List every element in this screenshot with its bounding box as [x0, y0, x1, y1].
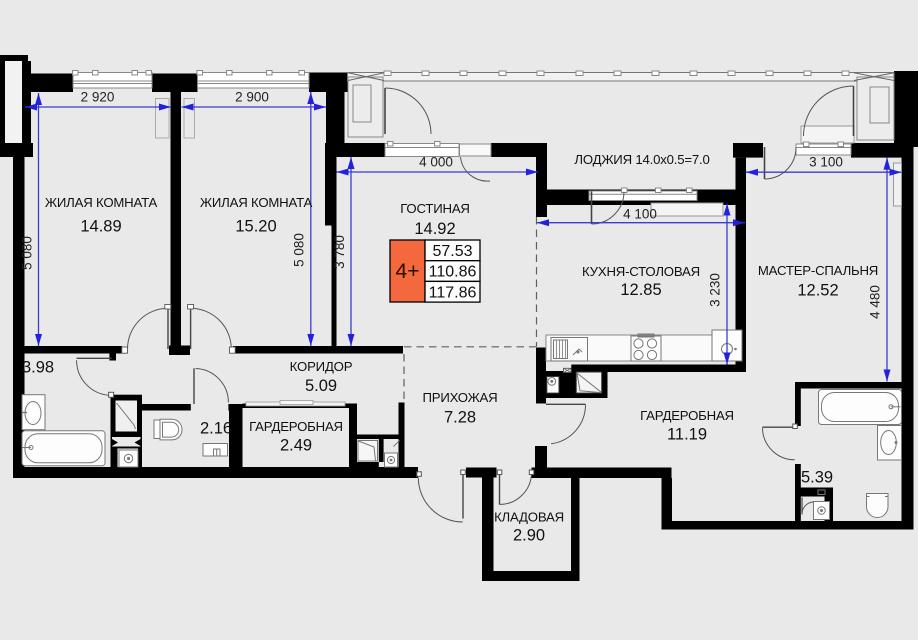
svg-text:2 900: 2 900 [235, 90, 269, 105]
svg-text:3 780: 3 780 [332, 235, 347, 269]
svg-text:5.39: 5.39 [801, 469, 833, 487]
svg-text:ЛОДЖИЯ 14.0x0.5=7.0: ЛОДЖИЯ 14.0x0.5=7.0 [574, 152, 709, 167]
svg-text:117.86: 117.86 [429, 284, 477, 301]
svg-text:5.09: 5.09 [305, 377, 337, 395]
svg-text:4 100: 4 100 [623, 207, 657, 222]
svg-text:2.16: 2.16 [200, 420, 232, 438]
svg-text:7.28: 7.28 [444, 409, 476, 427]
svg-text:ГОСТИНАЯ: ГОСТИНАЯ [400, 201, 470, 216]
svg-text:4 480: 4 480 [868, 285, 883, 319]
svg-text:ЖИЛАЯ КОМНАТА: ЖИЛАЯ КОМНАТА [45, 195, 158, 210]
svg-text:МАСТЕР-СПАЛЬНЯ: МАСТЕР-СПАЛЬНЯ [758, 263, 878, 278]
svg-text:14.89: 14.89 [80, 218, 121, 236]
svg-text:2.90: 2.90 [513, 527, 545, 545]
svg-text:5 080: 5 080 [292, 233, 307, 267]
svg-text:3 100: 3 100 [809, 155, 843, 170]
svg-text:ГАРДЕРОБНАЯ: ГАРДЕРОБНАЯ [249, 419, 343, 434]
svg-text:14.92: 14.92 [414, 220, 455, 238]
svg-text:3 230: 3 230 [708, 273, 723, 307]
svg-text:ЖИЛАЯ КОМНАТА: ЖИЛАЯ КОМНАТА [200, 195, 313, 210]
svg-text:3.98: 3.98 [22, 359, 54, 377]
svg-text:57.53: 57.53 [432, 243, 472, 260]
svg-text:12.85: 12.85 [620, 281, 661, 299]
svg-text:15.20: 15.20 [235, 218, 276, 236]
svg-text:ГАРДЕРОБНАЯ: ГАРДЕРОБНАЯ [640, 408, 734, 423]
svg-text:ПРИХОЖАЯ: ПРИХОЖАЯ [423, 390, 498, 405]
svg-text:КЛАДОВАЯ: КЛАДОВАЯ [494, 510, 564, 525]
svg-text:4+: 4+ [396, 260, 420, 283]
svg-text:КОРИДОР: КОРИДОР [290, 359, 353, 374]
svg-text:5 080: 5 080 [20, 236, 35, 270]
svg-text:2.49: 2.49 [280, 437, 312, 455]
svg-text:КУХНЯ-СТОЛОВАЯ: КУХНЯ-СТОЛОВАЯ [582, 264, 700, 279]
svg-text:11.19: 11.19 [667, 426, 707, 444]
svg-text:12.52: 12.52 [797, 282, 838, 300]
svg-text:2 920: 2 920 [81, 90, 115, 105]
svg-text:110.86: 110.86 [429, 264, 477, 281]
svg-text:4 000: 4 000 [419, 155, 453, 170]
